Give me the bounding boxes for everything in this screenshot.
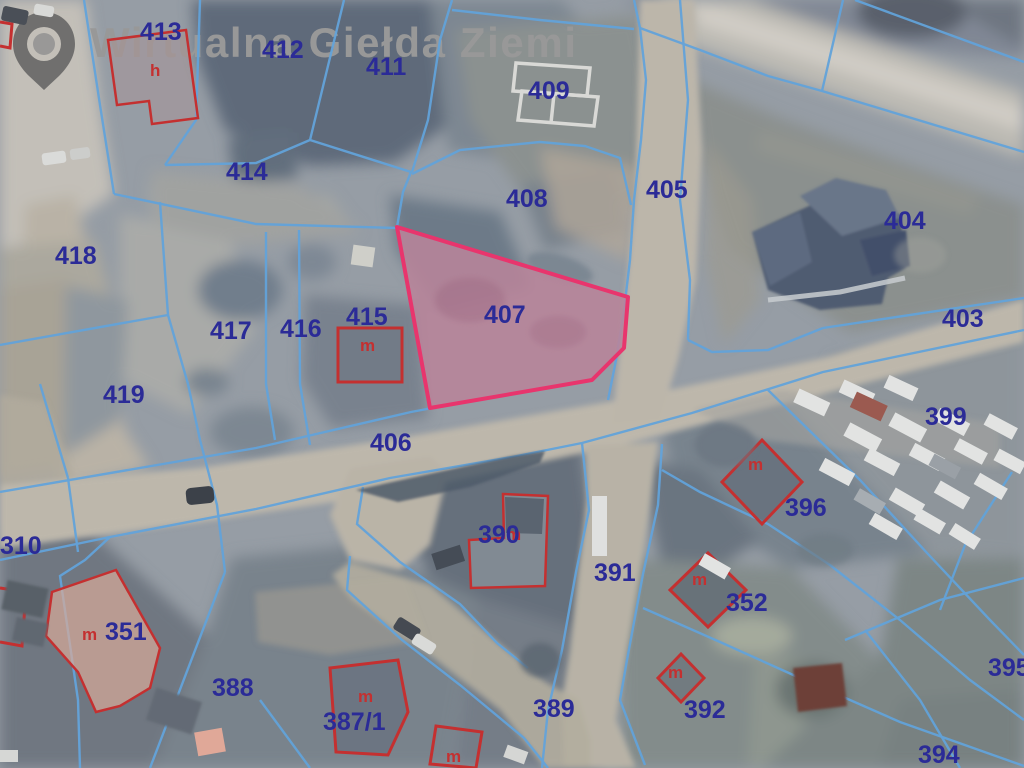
svg-text:407: 407	[484, 301, 526, 329]
svg-text:411: 411	[366, 53, 406, 81]
svg-text:m: m	[748, 455, 763, 474]
svg-text:h: h	[150, 61, 160, 80]
svg-text:392: 392	[684, 696, 726, 724]
svg-text:408: 408	[506, 185, 548, 213]
svg-text:387/1: 387/1	[323, 708, 386, 736]
svg-text:m: m	[82, 625, 97, 644]
svg-text:416: 416	[280, 315, 322, 343]
svg-text:418: 418	[55, 242, 97, 270]
svg-text:403: 403	[942, 305, 984, 333]
svg-text:419: 419	[103, 381, 145, 409]
svg-text:351: 351	[105, 618, 147, 646]
svg-text:389: 389	[533, 695, 575, 723]
svg-text:409: 409	[528, 77, 570, 105]
svg-text:413: 413	[140, 18, 182, 46]
svg-text:310: 310	[0, 532, 42, 560]
svg-text:m: m	[668, 663, 683, 682]
svg-text:m: m	[360, 336, 375, 355]
svg-text:m: m	[446, 747, 461, 766]
svg-text:395: 395	[988, 654, 1024, 682]
svg-text:m: m	[358, 687, 373, 706]
svg-text:388: 388	[212, 674, 254, 702]
svg-text:405: 405	[646, 176, 688, 204]
svg-text:399: 399	[925, 403, 967, 431]
svg-text:415: 415	[346, 303, 388, 331]
svg-text:417: 417	[210, 317, 252, 345]
svg-text:391: 391	[594, 559, 636, 587]
svg-text:352: 352	[726, 589, 768, 617]
svg-text:412: 412	[262, 36, 304, 64]
svg-text:404: 404	[884, 207, 926, 235]
svg-text:396: 396	[785, 494, 827, 522]
svg-text:m: m	[692, 570, 707, 589]
svg-text:414: 414	[226, 158, 268, 186]
svg-text:390: 390	[478, 521, 520, 549]
svg-text:394: 394	[918, 741, 960, 768]
svg-text:406: 406	[370, 429, 412, 457]
